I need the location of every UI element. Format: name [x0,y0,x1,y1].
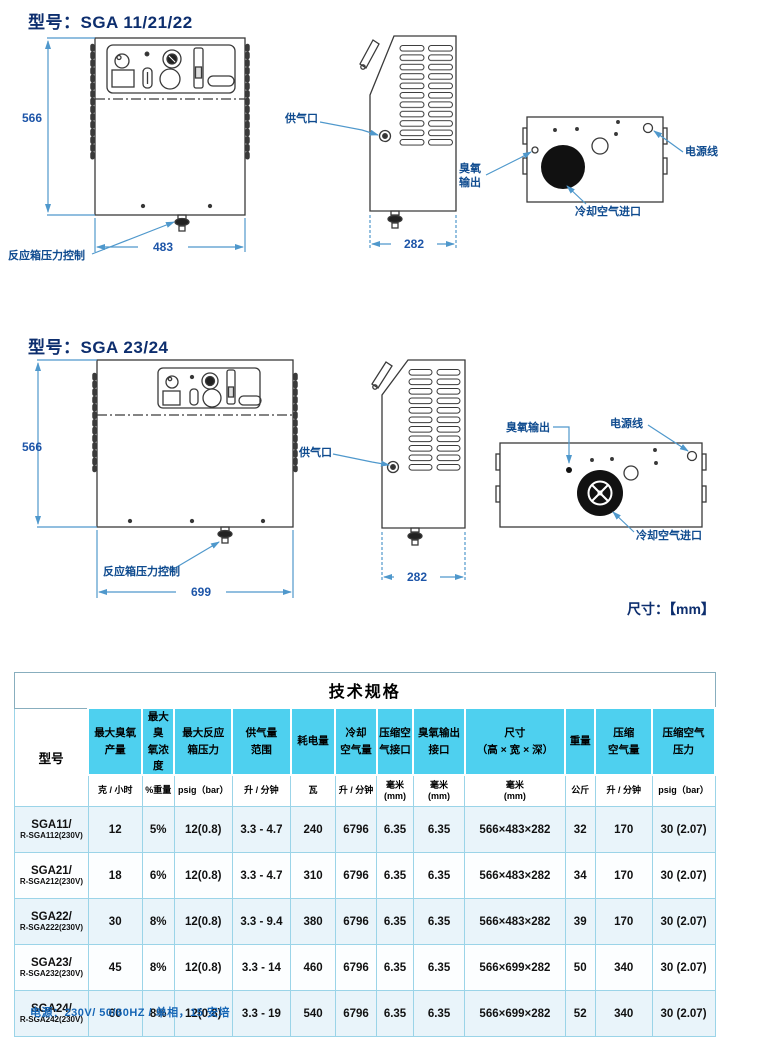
table-title: 技术规格 [15,673,716,709]
cell: 6.35 [377,945,413,991]
cell: 30 (2.07) [652,899,715,945]
ozone-output-label: 臭氧 输出 [459,162,481,191]
cell: 540 [291,991,336,1037]
col-header: 冷却 空气量 [335,708,376,775]
cell: 170 [595,899,652,945]
cell: 3.3 - 14 [232,945,291,991]
pressure-control-label: 反应箱压力控制 [103,565,180,579]
cell: 566×699×282 [465,991,565,1037]
cell: 30 (2.07) [652,807,715,853]
cell: 6.35 [413,991,465,1037]
cell: 566×699×282 [465,945,565,991]
col-unit: 克 / 小时 [88,775,142,807]
col-header: 最大反应 箱压力 [174,708,232,775]
ozone-output-label: 臭氧输出 [506,421,550,435]
cell: 3.3 - 9.4 [232,899,291,945]
pressure-valve [218,527,232,543]
depth-dimension: 282 [394,570,440,584]
depth-dimension: 282 [391,237,437,251]
col-unit: 毫米 (mm) [377,775,413,807]
col-unit: psig（bar） [174,775,232,807]
col-unit: 升 / 分钟 [595,775,652,807]
cell: 6.35 [413,853,465,899]
cell: 30 [88,899,142,945]
col-header-model: 型号 [15,708,89,807]
col-header: 压缩空气 压力 [652,708,715,775]
col-header: 压缩空 气接口 [377,708,413,775]
col-unit: %重量 [142,775,174,807]
model-variant: R-SGA112(230V) [15,831,88,840]
col-unit: 升 / 分钟 [232,775,291,807]
cell: 50 [565,945,595,991]
cell: 6.35 [377,899,413,945]
sga11-21-22-drawing [0,0,757,330]
col-header: 最大臭 氧浓度 [142,708,174,775]
cell: 5% [142,807,174,853]
top-view [496,443,706,527]
side-view [360,36,456,228]
cell: 12(0.8) [174,853,232,899]
cooling-inlet-label: 冷却空气进口 [636,529,702,543]
width-dimension: 699 [176,585,226,599]
cell: 6.35 [377,853,413,899]
cell: 6796 [335,807,376,853]
col-header: 最大臭氧 产量 [88,708,142,775]
cell-model: SGA23/ R-SGA232(230V) [15,945,89,991]
col-header: 臭氧输出 接口 [413,708,465,775]
cooling-air-inlet-hole [541,145,585,189]
front-view [93,38,248,231]
model-variant: R-SGA212(230V) [15,877,88,886]
model-name: SGA22/ [15,911,88,923]
col-header: 尺寸 （高 × 宽 × 深） [465,708,565,775]
cell: 6.35 [413,807,465,853]
cell: 6% [142,853,174,899]
cell: 3.3 - 19 [232,991,291,1037]
cell: 566×483×282 [465,899,565,945]
power-cord-label: 电源线 [685,145,718,159]
model-name: SGA23/ [15,957,88,969]
power-cord-label: 电源线 [610,417,643,431]
cell: 340 [595,945,652,991]
model-variant: R-SGA222(230V) [15,923,88,932]
cell: 6.35 [413,899,465,945]
col-unit: 毫米 (mm) [413,775,465,807]
cell: 30 (2.07) [652,945,715,991]
unit-row: 克 / 小时 %重量 psig（bar） 升 / 分钟 瓦 升 / 分钟 毫米 … [15,775,716,807]
air-inlet-label: 供气口 [299,446,332,460]
width-dimension: 483 [138,240,188,254]
model-name: SGA21/ [15,865,88,877]
cell: 170 [595,853,652,899]
cell: 380 [291,899,336,945]
col-header: 供气量 范围 [232,708,291,775]
cell: 6.35 [377,991,413,1037]
cell: 6.35 [377,807,413,853]
cell: 32 [565,807,595,853]
cell: 3.3 - 4.7 [232,807,291,853]
cell: 6796 [335,899,376,945]
power-requirements-note: 电源：230V/ 50/60HZ / 单相，15 安培 [30,1004,230,1020]
height-dimension: 566 [22,440,42,454]
cell: 39 [565,899,595,945]
spec-table: 技术规格 型号 最大臭氧 产量 最大臭 氧浓度 最大反应 箱压力 供气量 范围 … [14,672,716,1037]
top-view [523,117,667,202]
side-view [372,360,465,545]
cooling-inlet-label: 冷却空气进口 [575,205,641,219]
cell: 12(0.8) [174,899,232,945]
pressure-valve [175,215,189,231]
cell: 170 [595,807,652,853]
table-row: SGA11/ R-SGA112(230V) 12 5% 12(0.8) 3.3 … [15,807,716,853]
spec-sheet: 型号：SGA 11/21/22 566 483 反应箱压力控制 供气口 282 … [0,0,757,1038]
cell: 52 [565,991,595,1037]
cell: 12(0.8) [174,945,232,991]
cell: 6796 [335,853,376,899]
cell: 18 [88,853,142,899]
cell: 3.3 - 4.7 [232,853,291,899]
header-row: 型号 最大臭氧 产量 最大臭 氧浓度 最大反应 箱压力 供气量 范围 耗电量 冷… [15,708,716,775]
cooling-fan [577,470,623,516]
cell: 6.35 [413,945,465,991]
col-unit: 升 / 分钟 [335,775,376,807]
col-header: 重量 [565,708,595,775]
cell: 12 [88,807,142,853]
pressure-control-label: 反应箱压力控制 [8,249,85,263]
cell: 8% [142,945,174,991]
table-row: SGA21/ R-SGA212(230V) 18 6% 12(0.8) 3.3 … [15,853,716,899]
units-note: 尺寸：【mm】 [627,599,715,619]
cell: 6796 [335,945,376,991]
height-dimension: 566 [22,111,42,125]
sga23-24-drawing [0,330,757,670]
ozone-out-port [566,467,572,473]
table-title-row: 技术规格 [15,673,716,709]
front-view [95,360,296,543]
model-name: SGA11/ [15,819,88,831]
cell-model: SGA11/ R-SGA112(230V) [15,807,89,853]
cell: 34 [565,853,595,899]
cell: 6796 [335,991,376,1037]
col-header: 耗电量 [291,708,336,775]
cell: 310 [291,853,336,899]
section1-title: 型号：SGA 11/21/22 [28,8,193,33]
cell: 30 (2.07) [652,853,715,899]
cell: 240 [291,807,336,853]
cell: 340 [595,991,652,1037]
section2-title: 型号：SGA 23/24 [28,333,168,358]
col-header: 压缩 空气量 [595,708,652,775]
col-unit: psig（bar） [652,775,715,807]
table-row: SGA23/ R-SGA232(230V) 45 8% 12(0.8) 3.3 … [15,945,716,991]
col-unit: 瓦 [291,775,336,807]
cell: 30 (2.07) [652,991,715,1037]
model-variant: R-SGA232(230V) [15,969,88,978]
cell: 8% [142,899,174,945]
col-unit: 毫米 (mm) [465,775,565,807]
cell: 566×483×282 [465,853,565,899]
cell: 12(0.8) [174,807,232,853]
air-inlet-label: 供气口 [285,112,318,126]
cell-model: SGA22/ R-SGA222(230V) [15,899,89,945]
cell-model: SGA21/ R-SGA212(230V) [15,853,89,899]
table-row: SGA22/ R-SGA222(230V) 30 8% 12(0.8) 3.3 … [15,899,716,945]
col-unit: 公斤 [565,775,595,807]
cell: 566×483×282 [465,807,565,853]
cell: 45 [88,945,142,991]
cell: 460 [291,945,336,991]
